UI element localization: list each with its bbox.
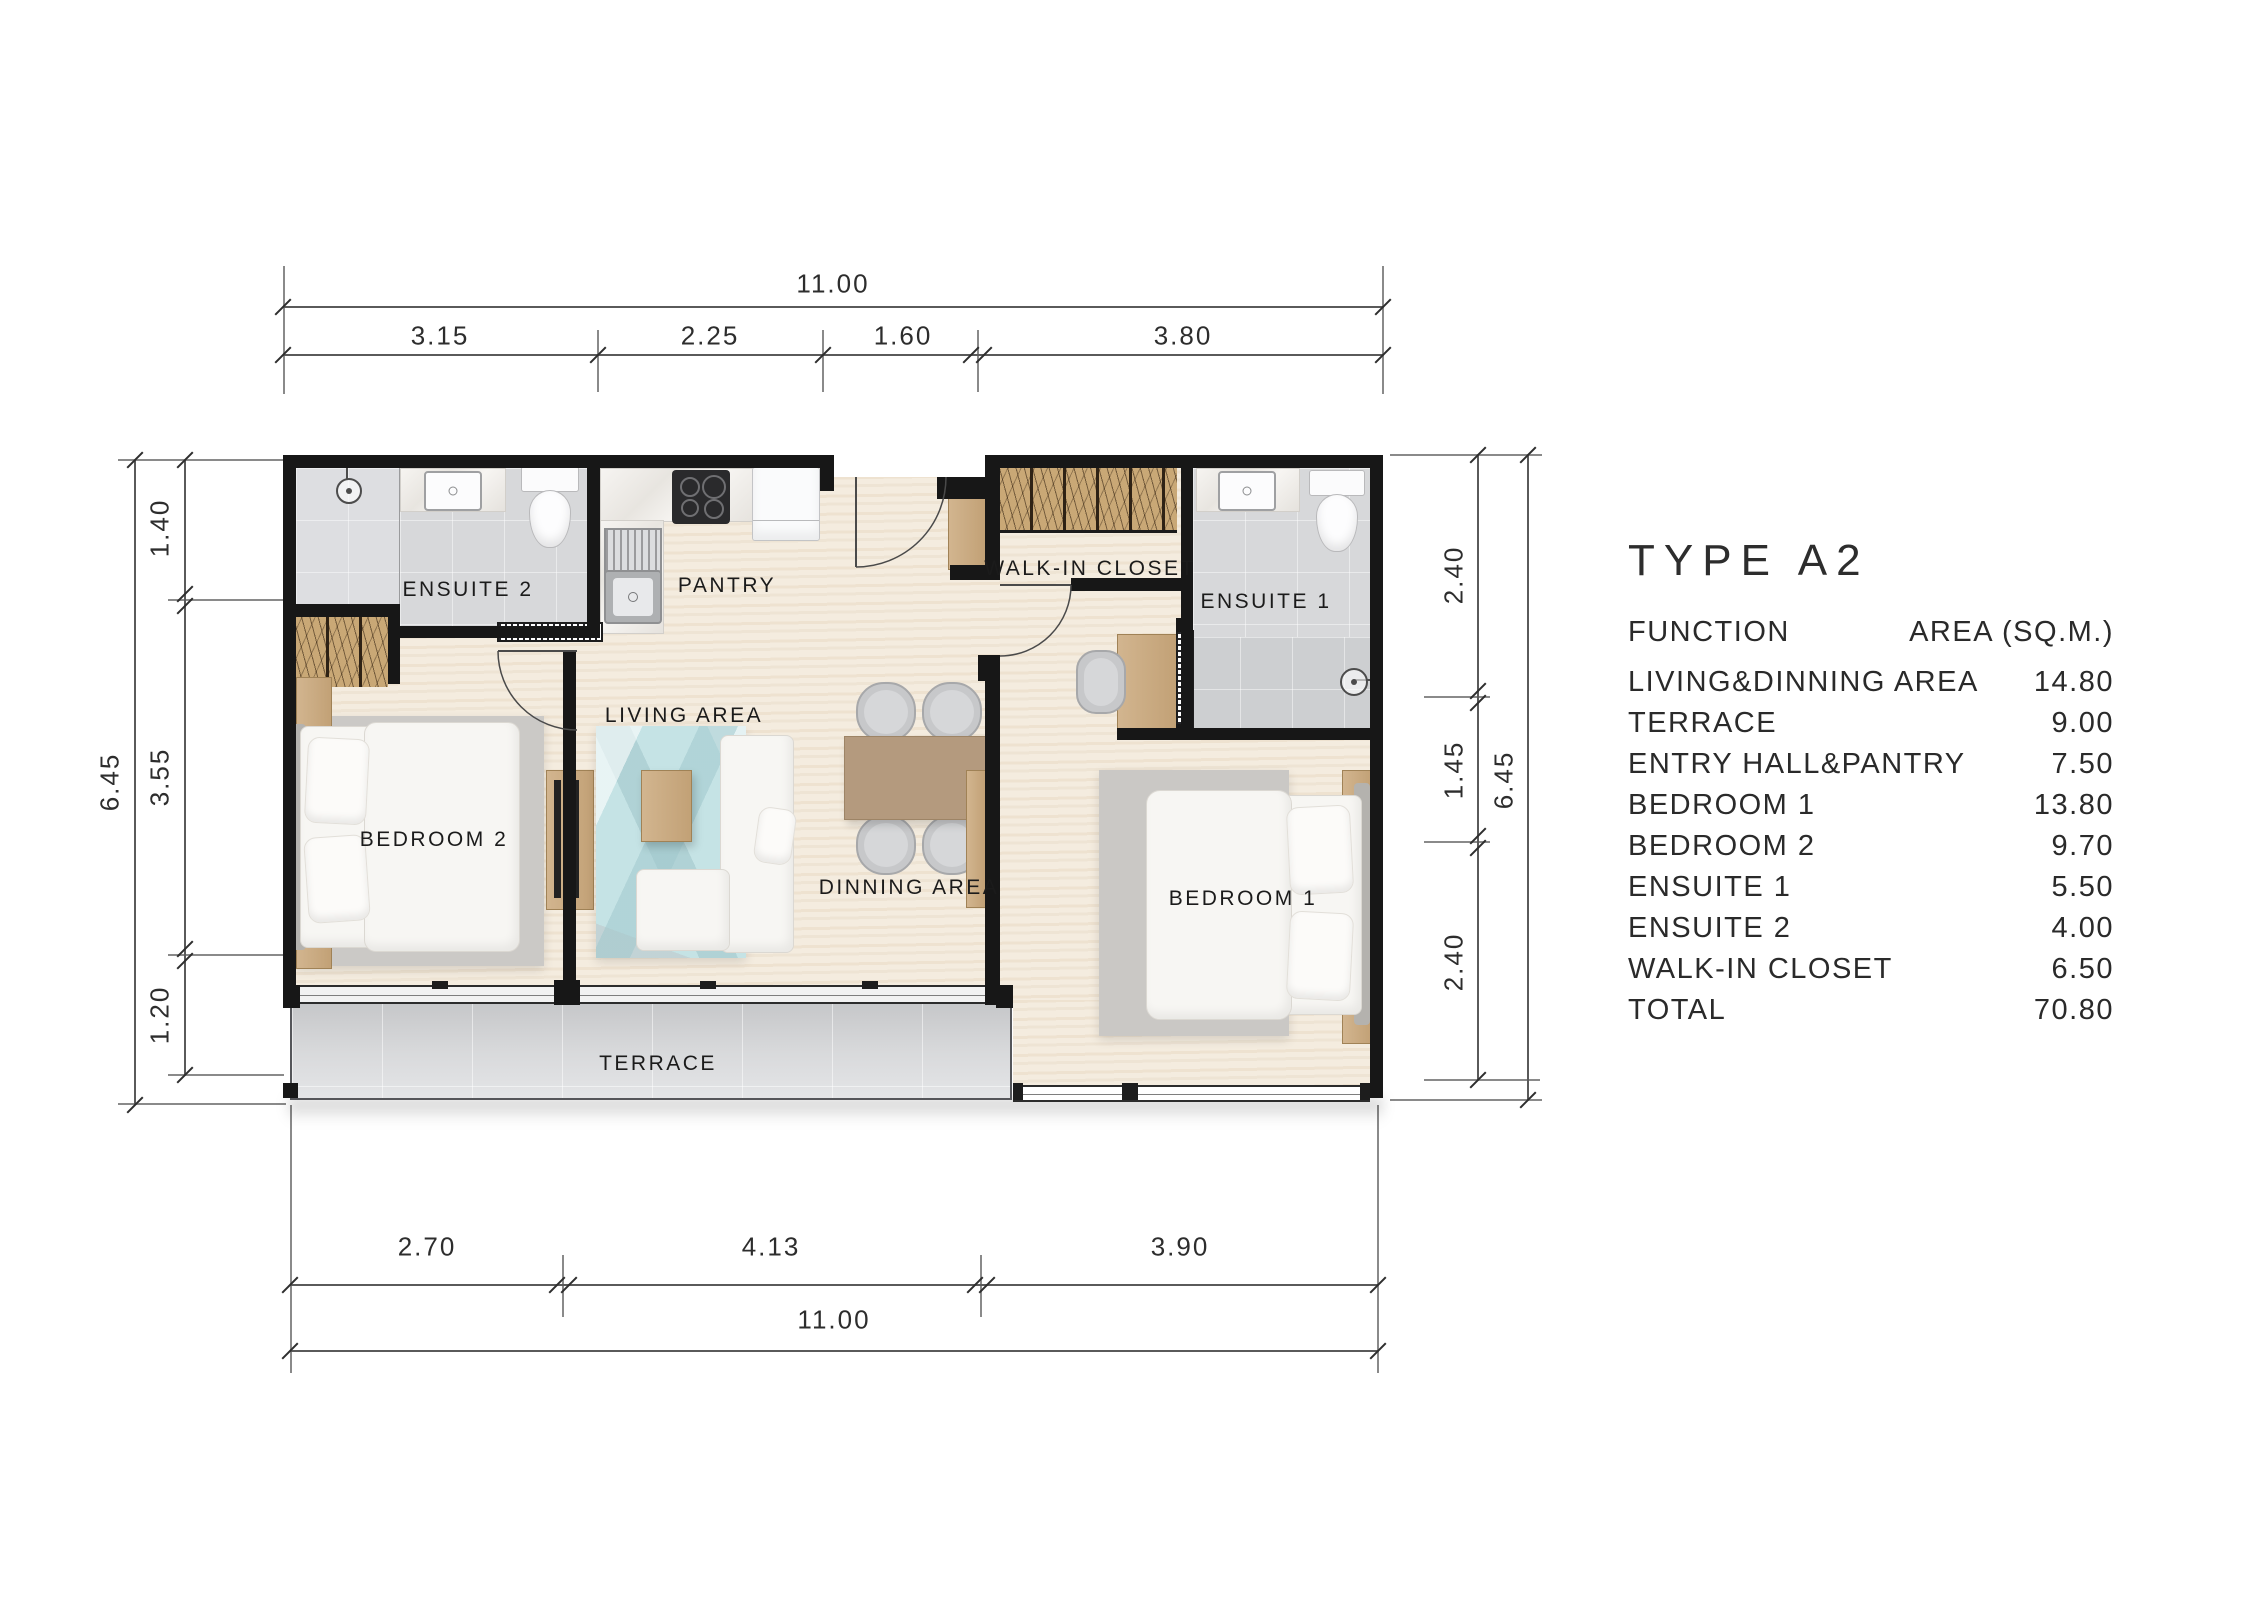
row-area: 14.80 [2034,666,2114,699]
row-function: BEDROOM 2 [1628,830,1816,863]
table-row: BEDROOM 113.80 [1628,785,2114,826]
table-row: WALK-IN CLOSET6.50 [1628,949,2114,990]
room-label-bedroom1: BEDROOM 1 [1169,887,1318,911]
unit-type-title: TYPE A2 [1628,536,2114,586]
row-function: ENSUITE 2 [1628,912,1791,945]
table-row: TOTAL70.80 [1628,990,2114,1031]
floorplan-canvas: 11.00 3.15 2.25 1.60 3.80 2.70 4.13 3.90… [0,0,2262,1600]
room-label-living: LIVING AREA [605,704,763,728]
row-area: 70.80 [2034,994,2114,1027]
room-label-pantry: PANTRY [678,574,776,598]
table-row: TERRACE9.00 [1628,703,2114,744]
bedroom2-door-arc [498,651,577,730]
table-row: ENTRY HALL&PANTRY7.50 [1628,744,2114,785]
entry-door-arc [856,477,946,567]
row-area: 7.50 [2052,748,2114,781]
row-area: 4.00 [2052,912,2114,945]
row-area: 9.00 [2052,707,2114,740]
table-row: ENSUITE 15.50 [1628,867,2114,908]
room-label-ensuite1: ENSUITE 1 [1200,590,1331,614]
room-label-terrace: TERRACE [599,1052,717,1076]
area-table-rows: LIVING&DINNING AREA14.80 TERRACE9.00 ENT… [1628,662,2114,1031]
row-function: ENTRY HALL&PANTRY [1628,748,1966,781]
room-label-bedroom2: BEDROOM 2 [360,828,509,852]
closet-door-arc [1000,585,1071,656]
row-function: TERRACE [1628,707,1777,740]
table-row: BEDROOM 29.70 [1628,826,2114,867]
row-area: 5.50 [2052,871,2114,904]
row-area: 9.70 [2052,830,2114,863]
row-function: LIVING&DINNING AREA [1628,666,1979,699]
row-function: WALK-IN CLOSET [1628,953,1893,986]
row-area: 13.80 [2034,789,2114,822]
row-function: TOTAL [1628,994,1726,1027]
room-label-ensuite2: ENSUITE 2 [402,578,533,602]
table-row: ENSUITE 24.00 [1628,908,2114,949]
row-area: 6.50 [2052,953,2114,986]
header-area: AREA (SQ.M.) [1909,616,2114,649]
table-row: LIVING&DINNING AREA14.80 [1628,662,2114,703]
row-function: BEDROOM 1 [1628,789,1816,822]
area-table: TYPE A2 FUNCTION AREA (SQ.M.) LIVING&DIN… [1628,536,2114,1031]
header-function: FUNCTION [1628,616,1790,649]
row-function: ENSUITE 1 [1628,871,1791,904]
area-table-header: FUNCTION AREA (SQ.M.) [1628,616,2114,649]
room-label-dinning: DINNING AREA [819,876,1000,900]
room-label-walkin-closet: WALK-IN CLOSET [984,557,1196,581]
